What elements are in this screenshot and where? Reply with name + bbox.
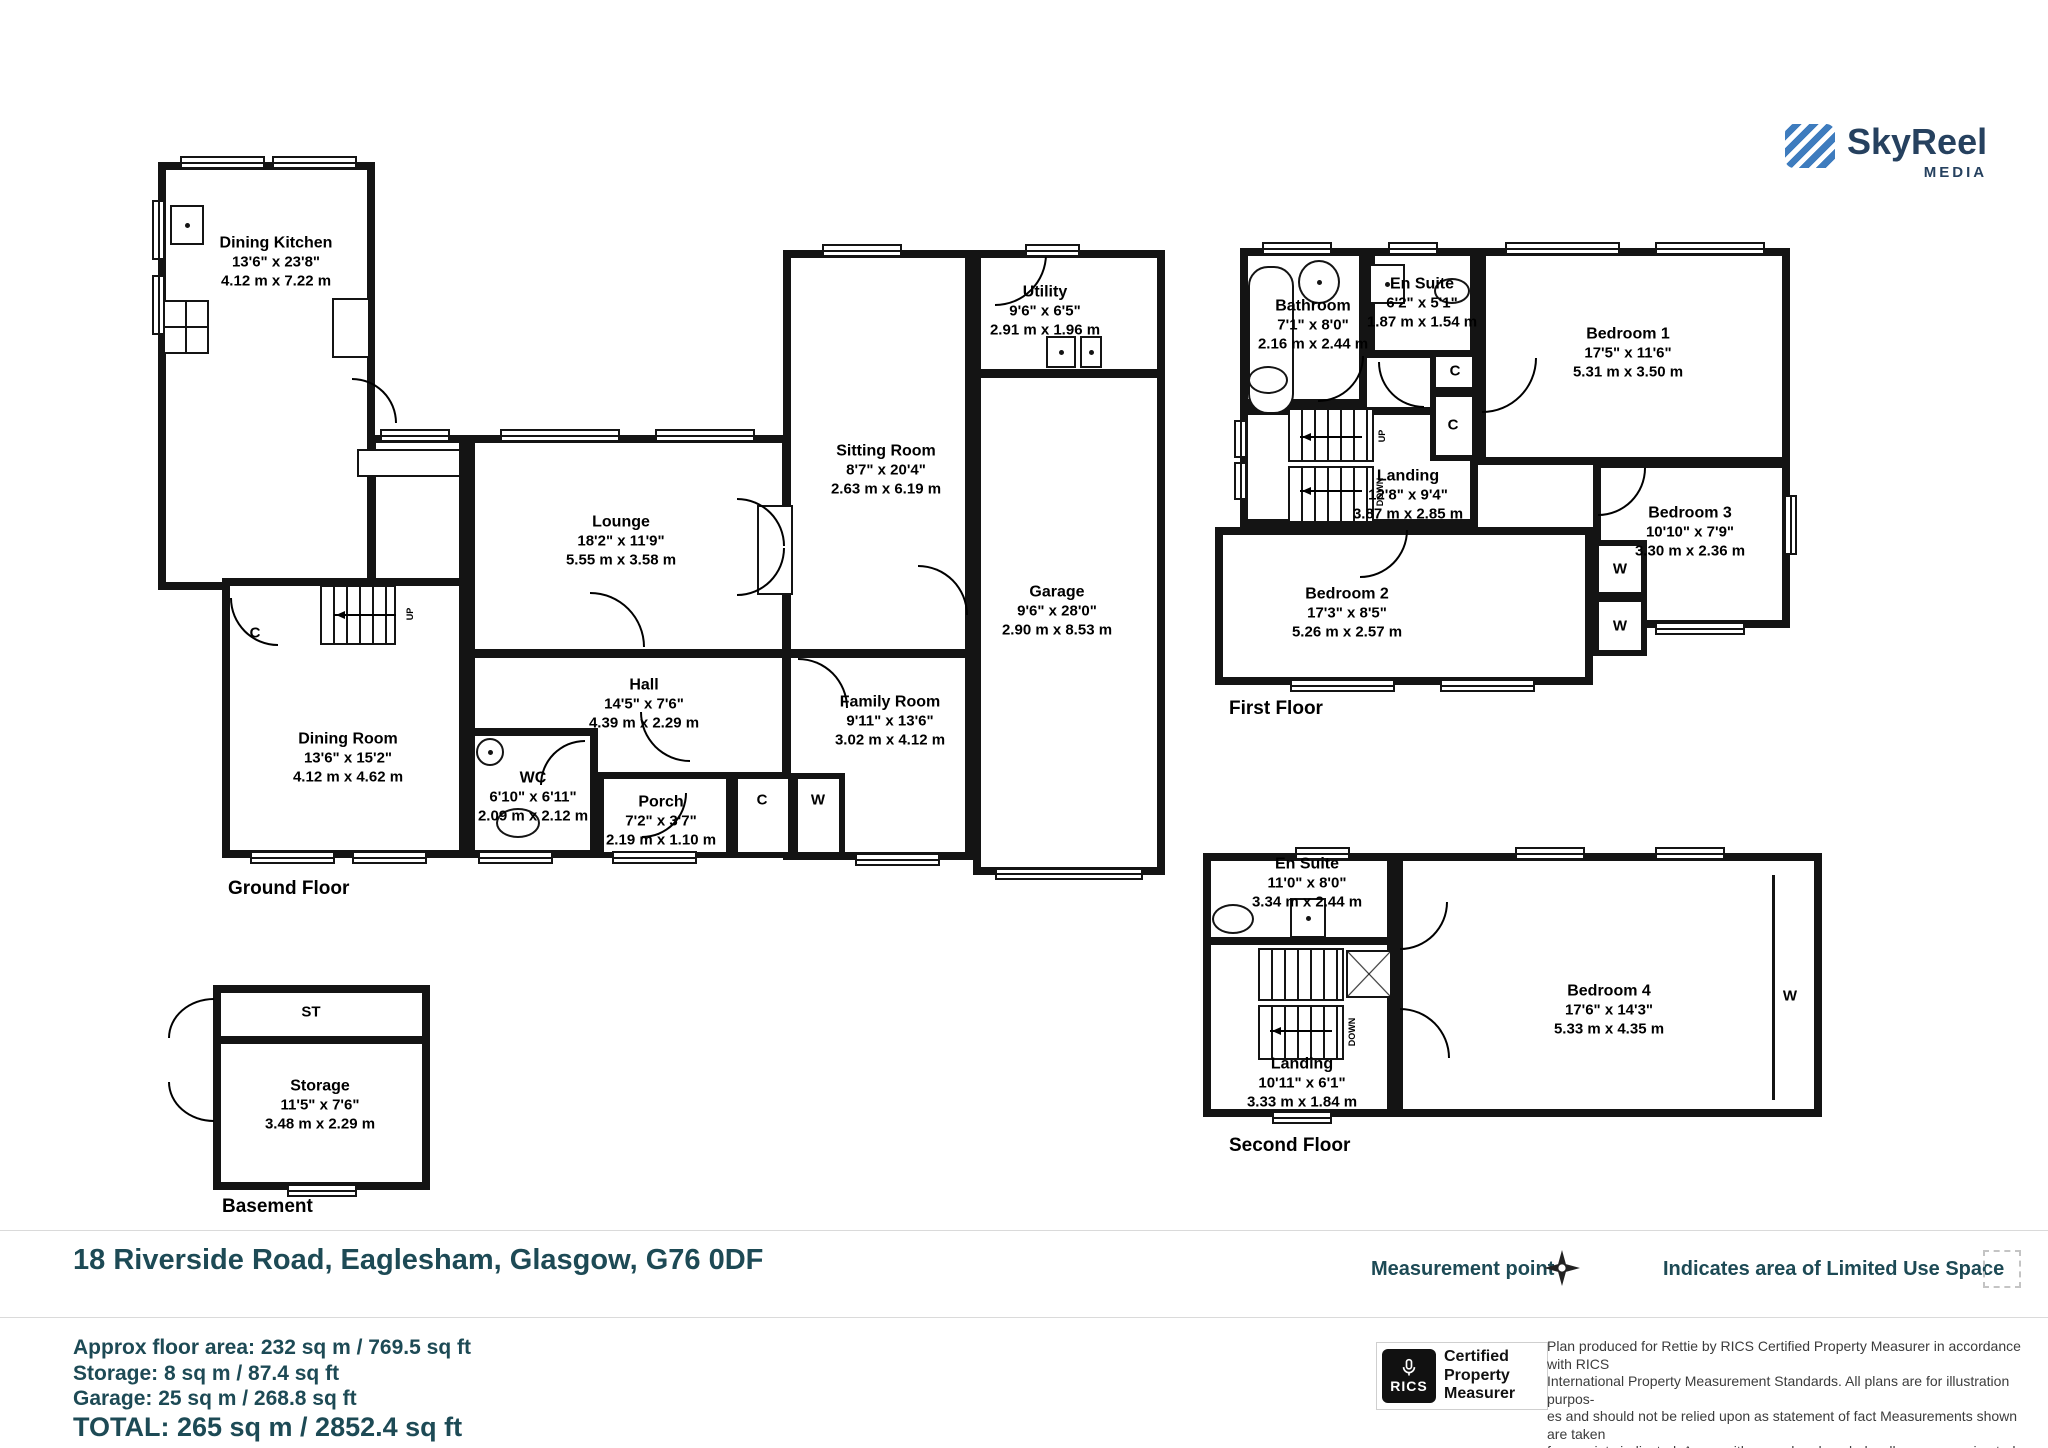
window: [1290, 679, 1395, 692]
door-arc: [1378, 362, 1424, 408]
label-lounge: Lounge18'2" x 11'9"5.55 m x 3.58 m: [566, 512, 676, 570]
label-bed2: Bedroom 217'3" x 8'5"5.26 m x 2.57 m: [1292, 584, 1402, 642]
window: [1655, 847, 1725, 860]
label-ensuite-sf: En Suite11'0" x 8'0"3.34 m x 2.44 m: [1252, 854, 1362, 912]
skyreel-wordmark: SkyReel MEDIA: [1847, 124, 1987, 181]
stairs-down-label: DOWN: [1347, 1018, 1357, 1047]
disclaimer-text: Plan produced for Rettie by RICS Certifi…: [1547, 1338, 2022, 1448]
window: [855, 853, 940, 866]
kitchen-pantry: [332, 298, 370, 358]
kitchen-hob: [163, 300, 209, 354]
utility-sink-2: [1080, 336, 1102, 368]
window: [1784, 495, 1797, 555]
window: [1262, 242, 1332, 255]
window: [500, 429, 620, 442]
rics-cert-text: Certified Property Measurer: [1444, 1348, 1515, 1403]
label-bed1: Bedroom 117'5" x 11'6"5.31 m x 3.50 m: [1573, 324, 1683, 382]
basement-divider-wall: [218, 1036, 425, 1044]
rics-logo-text: RICS: [1390, 1378, 1427, 1394]
door-arc: [352, 378, 397, 423]
label-ensuite-ff: En Suite6'2" x 5'1"1.87 m x 1.54 m: [1367, 274, 1477, 332]
first-floor-label: First Floor: [1229, 698, 1323, 720]
label-bathroom: Bathroom7'1" x 8'0"2.16 m x 2.44 m: [1258, 296, 1368, 354]
brand-tagline: MEDIA: [1847, 164, 1987, 181]
stairs-down-arrow: [1270, 1030, 1332, 1032]
closet-c-ground: [732, 773, 794, 858]
window: [152, 275, 165, 335]
window: [380, 429, 450, 442]
disclaimer-line: es and should not be relied upon as stat…: [1547, 1408, 2022, 1443]
window: [1440, 679, 1535, 692]
rics-logo: RICS: [1382, 1349, 1436, 1403]
closet-label-st: ST: [301, 1004, 320, 1021]
window: [1388, 242, 1438, 255]
window: [272, 156, 357, 169]
door-arc: [168, 1082, 214, 1122]
window: [180, 156, 265, 169]
window: [822, 244, 902, 257]
closet-label-c: C: [250, 625, 261, 642]
label-porch: Porch7'2" x 3'7"2.19 m x 1.10 m: [606, 792, 716, 850]
window: [1234, 420, 1247, 458]
disclaimer-line: from points indicated. Areas with curved…: [1547, 1443, 2022, 1448]
summary-area: Approx floor area: 232 sq m / 769.5 sq f…: [73, 1336, 471, 1360]
closet-w-ground: [792, 773, 845, 858]
wardrobe-front: [1772, 875, 1775, 1100]
label-bed3: Bedroom 310'10" x 7'9"3.30 m x 2.36 m: [1635, 503, 1745, 561]
closet-label-c: C: [757, 792, 768, 809]
ground-floor-label: Ground Floor: [228, 878, 349, 900]
label-dining-kitchen: Dining Kitchen13'6" x 23'8"4.12 m x 7.22…: [220, 233, 333, 291]
window: [1025, 244, 1080, 257]
stairs-up-arrow: [334, 614, 396, 616]
window: [1655, 622, 1745, 635]
label-hall: Hall14'5" x 7'6"4.39 m x 2.29 m: [589, 675, 699, 733]
limited-use-label: Indicates area of Limited Use Space: [1663, 1258, 2004, 1281]
stairs-up-label: UP: [1377, 430, 1387, 443]
skyreel-icon: [1785, 124, 1835, 168]
measurement-point-icon: [1544, 1250, 1580, 1286]
window: [1515, 847, 1585, 860]
window: [250, 851, 335, 864]
closet-label-w: W: [1613, 561, 1627, 578]
window: [352, 851, 427, 864]
window: [655, 429, 755, 442]
summary-garage: Garage: 25 sq m / 268.8 sq ft: [73, 1387, 357, 1411]
cupboard-x: [1346, 950, 1392, 998]
rics-badge: RICS Certified Property Measurer: [1376, 1342, 1548, 1410]
disclaimer-line: Plan produced for Rettie by RICS Certifi…: [1547, 1338, 2022, 1373]
skyreel-logo: SkyReel MEDIA: [1785, 124, 1987, 181]
label-garage: Garage9'6" x 28'0"2.90 m x 8.53 m: [1002, 582, 1112, 640]
stairs-up-label: UP: [405, 608, 415, 621]
label-wc: WC6'10" x 6'11"2.09 m x 2.12 m: [478, 768, 588, 826]
closet-label-c: C: [1448, 417, 1459, 434]
limited-use-icon: [1983, 1250, 2021, 1288]
closet-label-w: W: [811, 792, 825, 809]
window: [478, 851, 553, 864]
ensuite-sf-toilet: [1212, 904, 1254, 934]
divider: [0, 1230, 2048, 1231]
summary-storage: Storage: 8 sq m / 87.4 sq ft: [73, 1362, 339, 1386]
microphone-icon: [1399, 1358, 1419, 1378]
window: [1655, 242, 1765, 255]
closet-label-w: W: [1613, 618, 1627, 635]
label-sitting: Sitting Room8'7" x 20'4"2.63 m x 6.19 m: [831, 441, 941, 499]
window: [152, 200, 165, 260]
room-bed2: [1215, 527, 1593, 685]
label-storage: Storage11'5" x 7'6"3.48 m x 2.29 m: [265, 1076, 375, 1134]
second-floor-label: Second Floor: [1229, 1135, 1350, 1157]
divider: [0, 1317, 2048, 1318]
disclaimer-line: International Property Measurement Stand…: [1547, 1373, 2022, 1408]
closet-label-w: W: [1783, 988, 1797, 1005]
window: [1272, 1111, 1332, 1124]
label-utility: Utility9'6" x 6'5"2.91 m x 1.96 m: [990, 282, 1100, 340]
garage-door: [995, 868, 1143, 880]
window: [1234, 462, 1247, 500]
wc-basin: [476, 738, 504, 766]
window: [612, 851, 697, 864]
door-arc: [168, 998, 214, 1038]
label-dining: Dining Room13'6" x 15'2"4.12 m x 4.62 m: [293, 729, 403, 787]
summary-total: TOTAL: 265 sq m / 2852.4 sq ft: [73, 1412, 462, 1443]
label-bed4: Bedroom 417'6" x 14'3"5.33 m x 4.35 m: [1554, 981, 1664, 1039]
lounge-bay-unit: [357, 449, 461, 477]
closet-label-c: C: [1450, 363, 1461, 380]
stairs-up-arrow: [1300, 436, 1362, 438]
label-landing-sf: Landing10'11" x 6'1"3.33 m x 1.84 m: [1247, 1054, 1357, 1112]
utility-sink-1: [1046, 336, 1076, 368]
property-address: 18 Riverside Road, Eaglesham, Glasgow, G…: [73, 1244, 763, 1277]
basement-label: Basement: [222, 1196, 313, 1218]
label-family: Family Room9'11" x 13'6"3.02 m x 4.12 m: [835, 692, 945, 750]
window: [1505, 242, 1620, 255]
kitchen-sink: [170, 205, 204, 245]
floorplan-page: SkyReel MEDIA UP: [0, 0, 2048, 1448]
brand-name: SkyReel: [1847, 124, 1987, 160]
bathroom-toilet: [1248, 366, 1288, 394]
label-landing-ff: Landing12'8" x 9'4"3.87 m x 2.85 m: [1353, 466, 1463, 524]
measurement-point-label: Measurement point: [1371, 1258, 1554, 1281]
stairs-rail: [1258, 999, 1344, 1007]
